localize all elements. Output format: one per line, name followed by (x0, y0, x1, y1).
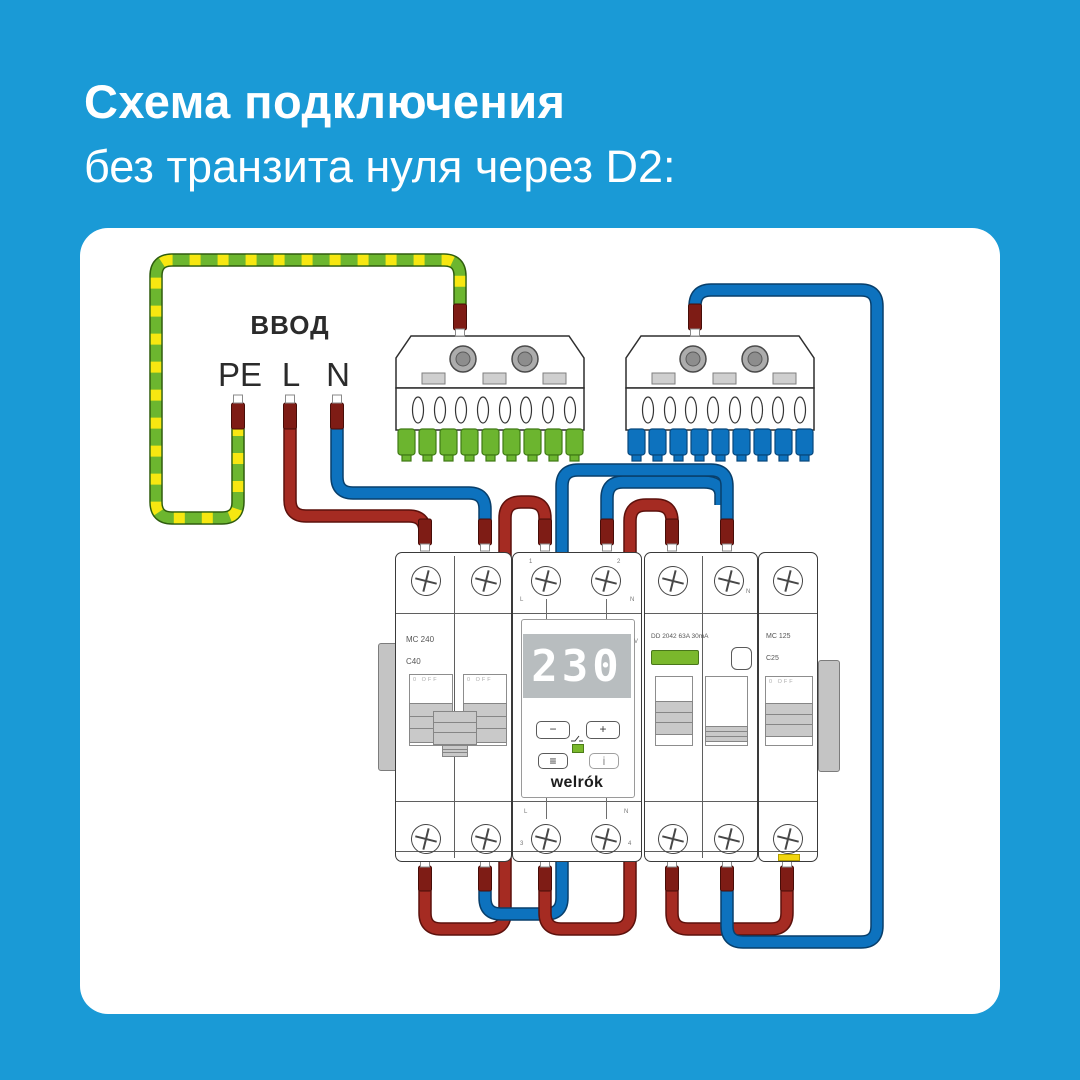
din-clip-right (818, 660, 840, 772)
line-terminal-label: L (271, 356, 311, 394)
relay-contact-icon (571, 735, 583, 742)
plus-button: + (586, 721, 620, 739)
rcd-model: DD 2042 63A 30mA (651, 633, 708, 640)
title-line-1: Схема подключения (84, 74, 565, 129)
title-line-2: без транзита нуля через D2: (84, 141, 676, 193)
status-led (572, 744, 584, 753)
terminal-screw (588, 563, 624, 599)
switch-tie-step (442, 745, 468, 757)
diagram-card: ВВОД PE L N MC 240 C40 0 OFF 0 OFF (80, 228, 1000, 1014)
relay-l-label: L (520, 597, 523, 603)
pole-divider (454, 556, 455, 858)
breaker-model: MC 240 (406, 635, 434, 644)
switch-tie-bar (433, 711, 477, 745)
relay-terminal-2-label: 2 (617, 559, 620, 565)
switch-marking: 0 OFF (769, 679, 795, 685)
voltage-relay-d2: 1 2 L N L N 3 4 230 V − + ≡ i welrók (512, 552, 642, 862)
breaker-model: MC 125 (766, 633, 791, 640)
rcd-n-marking: N (746, 589, 750, 595)
terminal-screw (528, 563, 564, 599)
terminal-screw (770, 563, 806, 599)
relay-n-label-bottom: N (624, 809, 628, 815)
relay-terminal-1-label: 1 (529, 559, 532, 565)
n-busbar (626, 336, 814, 461)
voltage-unit-label: V (634, 639, 638, 645)
test-button (731, 647, 752, 670)
n-bus-teeth (628, 429, 813, 461)
relay-n-label: N (630, 597, 634, 603)
input-section-label: ВВОД (250, 310, 330, 341)
info-button: i (589, 753, 619, 769)
switch-tray (705, 726, 748, 742)
switch-marking: 0 OFF (413, 677, 439, 683)
pe-busbar (396, 336, 584, 461)
neutral-yellow-marker (778, 854, 800, 861)
relay-terminal-3-label: 3 (520, 841, 523, 847)
terminal-screw (711, 563, 747, 599)
terminal-screw (655, 563, 691, 599)
pe-terminal-label: PE (218, 356, 262, 394)
breaker-rating: C40 (406, 657, 421, 666)
welrok-logo: welrók (513, 774, 641, 792)
relay-terminal-4-label: 4 (628, 841, 631, 847)
neutral-terminal-label: N (318, 356, 358, 394)
pole-divider (702, 556, 703, 858)
menu-button: ≡ (538, 753, 568, 769)
switch-handle (655, 701, 693, 735)
relay-voltage-display: 230 (523, 634, 631, 698)
input-breaker: MC 240 C40 0 OFF 0 OFF (395, 552, 512, 862)
relay-l-label-bottom: L (524, 809, 527, 815)
pe-bus-teeth (398, 429, 583, 461)
rcd-indicator (651, 650, 699, 665)
group-breaker: MC 125 C25 0 OFF (758, 552, 818, 862)
terminal-screw (468, 563, 504, 599)
rcd-breaker: N DD 2042 63A 30mA (644, 552, 758, 862)
minus-button: − (536, 721, 570, 739)
infographic: { "title": { "line1": "Схема подключения… (0, 0, 1080, 1080)
breaker-rating: C25 (766, 655, 779, 662)
switch-marking: 0 OFF (467, 677, 493, 683)
switch-handle (765, 703, 813, 737)
terminal-screw (408, 563, 444, 599)
